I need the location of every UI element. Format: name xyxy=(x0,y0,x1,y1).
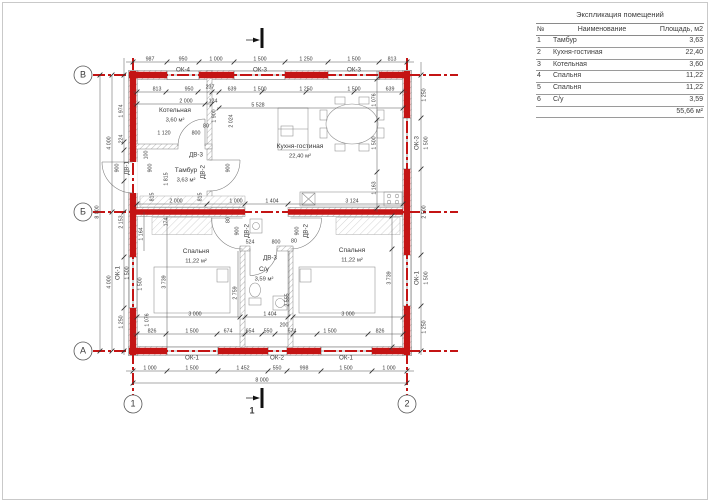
room-area-label: 11,22 м² xyxy=(185,259,207,265)
dimension-label: 1 500 xyxy=(323,328,336,334)
dimension-label: 1 000 xyxy=(143,365,156,371)
room-name-label: Тамбур xyxy=(175,166,198,174)
dimension-label: 1 500 xyxy=(253,56,266,62)
dimension-label: 524 xyxy=(246,239,255,245)
dimension-label: 8 000 xyxy=(94,205,100,218)
dimension-label: 100 xyxy=(143,151,149,160)
table-row: 1Тамбур3,63 xyxy=(536,36,704,48)
room-name-label: Кухня-гостиная xyxy=(277,143,324,150)
dimension-label: 815 xyxy=(149,193,155,202)
sink-icon xyxy=(302,193,315,205)
table-cell: Тамбур xyxy=(552,36,652,48)
dimension-label: 1 000 xyxy=(382,365,395,371)
dimension-label: 813 xyxy=(153,86,162,92)
room-area-label: 3,59 м² xyxy=(255,277,274,283)
dimension-label: 654 xyxy=(246,328,255,334)
pillow xyxy=(217,269,228,282)
drawing-sheet: 9879501 0001 5001 2501 500813ОК-4ОК-3ОК-… xyxy=(0,0,710,502)
dimension-label: 80 xyxy=(291,238,297,244)
dimension-label: 1 404 xyxy=(263,311,276,317)
dimension-label: 5 528 xyxy=(251,102,264,108)
total-spacer xyxy=(536,106,552,118)
table-header-row: № Наименование Площадь, м2 xyxy=(536,24,704,36)
table-row: 2Кухня-гостиная22,40 xyxy=(536,47,704,59)
washbasin-icon xyxy=(250,219,262,233)
room-name-label: Спальня xyxy=(183,248,210,255)
dimension-label: 674 xyxy=(224,328,233,334)
dimension-label: 1 500 xyxy=(137,277,143,290)
dimension-label: 1 404 xyxy=(265,198,278,204)
table-row: 3Котельная3,60 xyxy=(536,59,704,71)
bed-right xyxy=(299,267,375,313)
dimension-label: 674 xyxy=(288,328,297,334)
dimension-label: 900 xyxy=(114,164,120,173)
table-cell: 4 xyxy=(536,71,552,83)
dimension-label: 1 500 xyxy=(347,86,360,92)
dimension-label: 1 500 xyxy=(347,56,360,62)
window-tag: ОК-3 xyxy=(347,67,361,74)
window-tag: ОК-1 xyxy=(115,265,122,279)
dimension-label: 639 xyxy=(386,86,395,92)
table-cell: 11,22 xyxy=(652,83,704,95)
room-area-label: 22,40 м² xyxy=(289,154,311,160)
table-cell: 3,59 xyxy=(652,94,704,106)
total-area: 55,66 м² xyxy=(652,106,704,118)
toilet-icon xyxy=(249,283,261,305)
door-tag: ДВ-2 xyxy=(303,224,310,238)
dimension-label: 1 250 xyxy=(421,88,427,101)
table-cell: 5 xyxy=(536,83,552,95)
room-area-label: 3,60 м² xyxy=(166,118,185,124)
room-name-label: Котельная xyxy=(159,107,191,114)
dimension-label: 950 xyxy=(185,86,194,92)
explication-table: Экспликация помещений № Наименование Пло… xyxy=(536,10,704,118)
section-mark-label: 1 xyxy=(249,405,254,415)
table-cell: 1 xyxy=(536,36,552,48)
dimension-label: 815 xyxy=(197,193,203,202)
dimension-label: 4 000 xyxy=(106,136,112,149)
dimension-label: 237 xyxy=(206,84,215,90)
dimension-label: 800 xyxy=(192,130,201,136)
dimension-label: 1 500 xyxy=(339,365,352,371)
window-tag: ОК-1 xyxy=(185,355,199,362)
dimension-label: 1 076 xyxy=(371,93,377,106)
grid-axis-label: Б xyxy=(80,206,86,216)
table-cell: Котельная xyxy=(552,59,652,71)
grid-axis-label: 2 xyxy=(404,398,409,408)
pillow xyxy=(300,269,311,282)
dimension-label: 1 076 xyxy=(144,313,150,326)
dimension-label: 80 xyxy=(203,123,209,129)
header-name: Наименование xyxy=(552,24,652,36)
dimension-label: 3 739 xyxy=(161,275,167,288)
dimension-label: 1 500 xyxy=(124,266,130,279)
table-cell: 3,63 xyxy=(652,36,704,48)
door-tag: ДВ-3 xyxy=(189,152,203,159)
dimension-label: 2 024 xyxy=(228,114,234,127)
dimension-label: 1 974 xyxy=(118,104,124,117)
dimension-label: 3 000 xyxy=(341,311,354,317)
dining-table xyxy=(326,104,378,144)
dimension-label: 1 815 xyxy=(163,172,169,185)
dimension-label: 1 163 xyxy=(371,181,377,194)
table-title: Экспликация помещений xyxy=(536,10,704,19)
grid-axis-label: В xyxy=(80,69,86,79)
dimension-label: 1 000 xyxy=(209,56,222,62)
door-tag: ДВ-1 xyxy=(124,161,131,175)
dimension-label: 1 250 xyxy=(299,56,312,62)
dimension-label: 124 xyxy=(209,98,218,104)
dimension-label: 998 xyxy=(300,365,309,371)
table-cell: С/у xyxy=(552,94,652,106)
dimension-label: 900 xyxy=(147,164,153,173)
dimension-label: 2 759 xyxy=(232,286,238,299)
dimension-label: 4 000 xyxy=(106,275,112,288)
room-area-label: 11,22 м² xyxy=(341,258,363,264)
window-tag: ОК-1 xyxy=(414,270,421,284)
dimension-label: 1 452 xyxy=(236,365,249,371)
kitchen-sink-top xyxy=(281,126,293,136)
header-num: № xyxy=(536,24,552,36)
dimension-label: 1 500 xyxy=(185,328,198,334)
bed-left xyxy=(154,267,230,313)
table-total-row: 55,66 м² xyxy=(536,106,704,118)
dimension-label: 800 xyxy=(272,239,281,245)
dimension-label: 550 xyxy=(273,365,282,371)
table-cell: 22,40 xyxy=(652,47,704,59)
dimension-label: 1 250 xyxy=(118,315,124,328)
window-tag: ОК-1 xyxy=(339,355,353,362)
dimension-label: 3 124 xyxy=(345,198,358,204)
table-cell: 11,22 xyxy=(652,71,704,83)
dimension-label: 1 500 xyxy=(253,86,266,92)
dimension-label: 3 739 xyxy=(386,271,392,284)
dimension-label: 224 xyxy=(118,135,124,144)
dimension-label: 900 xyxy=(294,227,300,236)
room-name-label: Спальня xyxy=(339,247,366,254)
door-tag: ДВ-2 xyxy=(244,224,251,238)
window-tag: ОК-3 xyxy=(414,135,421,149)
dimension-label: 826 xyxy=(376,328,385,334)
table-cell: 3 xyxy=(536,59,552,71)
dimension-label: 2 153 xyxy=(118,215,124,228)
header-area: Площадь, м2 xyxy=(652,24,704,36)
room-area-label: 3,63 м² xyxy=(177,178,196,184)
door-tag: ДВ-2 xyxy=(200,165,207,179)
table-cell: Спальня xyxy=(552,71,652,83)
dimension-label: 987 xyxy=(146,56,155,62)
dimension-label: 2 000 xyxy=(169,198,182,204)
dimension-label: 639 xyxy=(228,86,237,92)
dimension-label: 80 xyxy=(225,217,231,223)
dimension-label: 900 xyxy=(225,164,231,173)
dimension-label: 1 250 xyxy=(421,320,427,333)
table-cell: Спальня xyxy=(552,83,652,95)
total-spacer xyxy=(552,106,652,118)
dimension-label: 2 555 xyxy=(284,293,290,306)
table-cell: 3,60 xyxy=(652,59,704,71)
dimension-label: 1 250 xyxy=(299,86,312,92)
dimension-label: 1 500 xyxy=(423,136,429,149)
dimension-label: 826 xyxy=(148,328,157,334)
dimension-label: 174 xyxy=(163,218,169,227)
dimension-label: 1 120 xyxy=(157,130,170,136)
table-row: 5Спальня11,22 xyxy=(536,83,704,95)
dimension-label: 1 500 xyxy=(423,271,429,284)
dimension-label: 2 500 xyxy=(421,205,427,218)
table-cell: 2 xyxy=(536,47,552,59)
window-tag: ОК-3 xyxy=(253,67,267,74)
window-tag: ОК-2 xyxy=(270,355,284,362)
dimension-label: 1 164 xyxy=(138,227,144,240)
table-row: 4Спальня11,22 xyxy=(536,71,704,83)
grid-axis-label: А xyxy=(80,345,86,355)
dimension-label: 1 900 xyxy=(211,109,217,122)
dimension-label: 3 000 xyxy=(188,311,201,317)
dimension-label: 950 xyxy=(179,56,188,62)
table-cell: 6 xyxy=(536,94,552,106)
dimension-label: 8 000 xyxy=(255,377,268,383)
dimension-label: 813 xyxy=(388,56,397,62)
dimension-label: 2 000 xyxy=(179,98,192,104)
dimension-label: 900 xyxy=(234,227,240,236)
dimension-label: 1 000 xyxy=(229,198,242,204)
room-name-label: С/у xyxy=(259,266,270,273)
dimension-label: 550 xyxy=(264,328,273,334)
grid-axis-label: 1 xyxy=(130,398,135,408)
dimension-label: 1 500 xyxy=(185,365,198,371)
table-row: 6С/у3,59 xyxy=(536,94,704,106)
table-cell: Кухня-гостиная xyxy=(552,47,652,59)
door-tag: ДВ-3 xyxy=(263,255,277,262)
dimension-label: 1 500 xyxy=(371,136,377,149)
window-tag: ОК-4 xyxy=(176,67,190,74)
